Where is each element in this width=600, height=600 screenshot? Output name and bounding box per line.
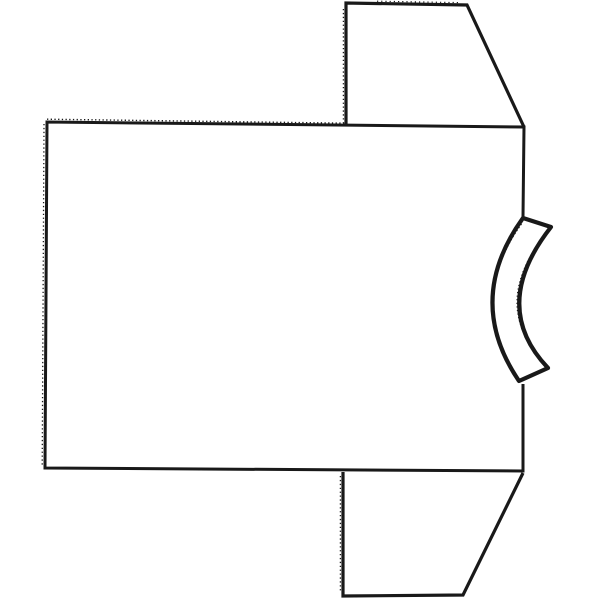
pattern-diagram: [0, 0, 600, 600]
body-panel-outline: [45, 122, 524, 471]
body-left-fringe-texture: [42, 124, 44, 466]
sleeve-top-outline: [346, 3, 524, 127]
pattern-sheet: [0, 0, 600, 600]
sleeve-bottom-outline: [343, 472, 523, 596]
neckband-outline: [492, 218, 551, 381]
